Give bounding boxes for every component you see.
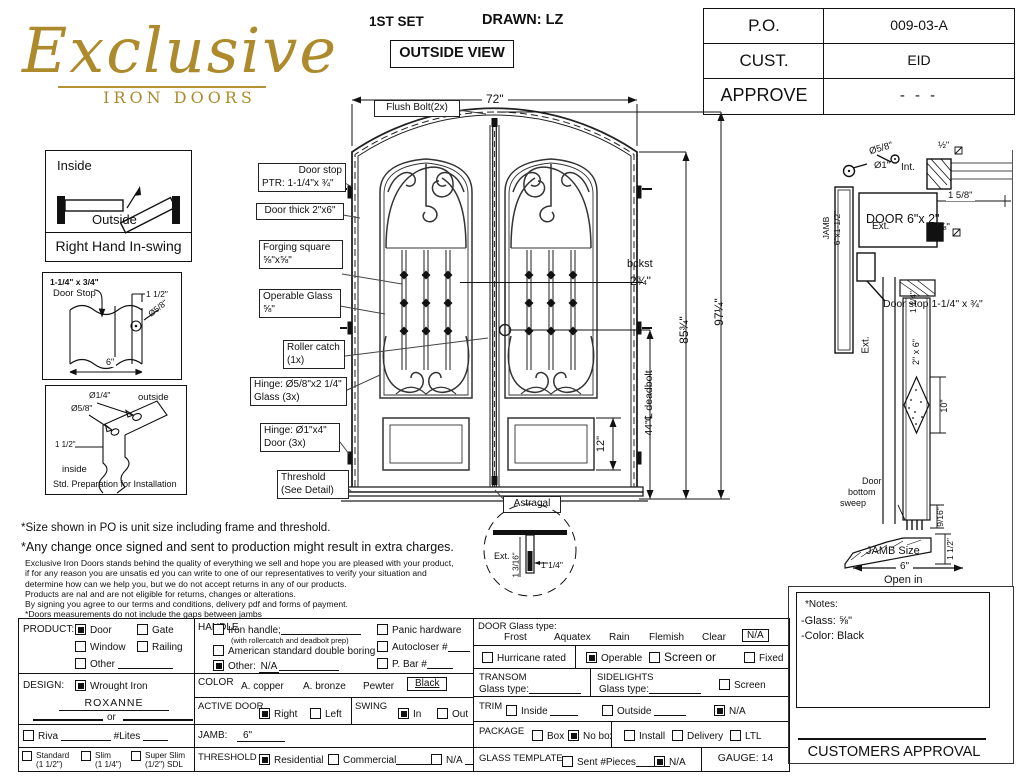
trim-inside-blank[interactable] [550,706,578,716]
design-wrought-label: Wrought Iron [90,681,148,692]
product-door-label: Door [90,625,112,636]
handle-american-label: American standard double boring [228,646,375,657]
panic-label: Panic hardware [392,625,461,636]
doorstop-width-dim: 6" [104,357,116,367]
sidelights-blank[interactable] [649,684,701,694]
checkbox-pbar[interactable] [377,658,388,669]
sidelight-screen-label: Screen [734,680,766,691]
sd-door: 2" x 6" [911,339,921,365]
color-copper[interactable]: A. copper [241,681,284,692]
callout-hinge-glass: Hinge: Ø5/8"x2 1/4" Glass (3x) [250,377,347,406]
drawn-by-label: DRAWN: LZ [482,12,563,28]
slim-label: Slim(1 1/4") [95,751,122,769]
delivery-cell: Install Delivery LTL [611,721,790,749]
trim-outside-blank[interactable] [654,706,686,716]
pbar-blank[interactable] [427,659,453,669]
threshold-res-label: Residential [274,755,323,766]
threshold-na-label: N/A [446,755,462,766]
astragal-dim2: 1 1/4" [541,560,563,570]
checkbox-screen[interactable] [649,652,660,663]
po-label: P.O. [703,8,825,45]
checkbox-product-gate[interactable] [137,624,148,635]
callout-door-thick: Door thick 2"x6" [256,203,344,220]
jamb-cell: JAMB: 6" [194,724,475,749]
notes-box-glass: -Glass: ⅝" [801,615,852,627]
checkbox-tmpl-na[interactable] [654,756,665,767]
checkbox-sidelight-screen[interactable] [719,679,730,690]
handle-iron-note: (with rollercatch and deadbolt prep) [231,636,349,645]
color-black-selected[interactable]: Black [407,677,447,691]
transom-glass-type: Glass type: [479,684,529,695]
dim-panel: 12" [595,436,607,452]
astragal-detail [468,493,598,598]
sd-open-in: Open in [884,574,923,586]
active-left-label: Left [325,709,342,720]
glass-flemish[interactable]: Flemish [649,632,684,643]
callout-door-stop: Door stop PTR: 1-1/4"x ¾" [258,163,346,192]
checkbox-tmpl-sent[interactable] [562,756,573,767]
dim-leaf-height: 85¾" [677,316,691,344]
checkbox-product-other[interactable] [75,658,86,669]
callout-operable-l2: ⅝" [263,304,337,317]
checkbox-panic[interactable] [377,624,388,635]
dim-bckst: bckst [627,258,653,270]
handle-cell: HANDLE Iron handle; (with rollercatch an… [194,618,475,675]
transom-cell: TRANSOM Glass type: [473,668,592,698]
prep-hole-big: Ø5/8" [71,403,92,413]
callout-operable-l1: Operable Glass [263,291,337,304]
tmpl-label: GLASS TEMPLATE [479,753,563,764]
swing-out-label: Out [452,709,468,720]
sidelights-cell: SIDELIGHTS Glass type: Screen [590,668,790,698]
notes-box: *Notes: -Glass: ⅝" -Color: Black [796,592,990,708]
checkbox-trim-outside[interactable] [602,705,613,716]
active-right-label: Right [274,709,297,720]
handle-iron-label: Iron handle; [228,625,281,636]
jd-jamb2: 6"x1-1/2" [832,211,842,245]
pkg-nobox-label: No box [583,731,615,742]
swing-caption: Right Hand In-swing [45,232,192,262]
trim-outside-label: Outside [617,706,651,717]
cust-value: EID [823,43,1015,80]
color-pewter[interactable]: Pewter [363,681,394,692]
checkbox-handle-american[interactable] [213,645,224,656]
autocloser-blank[interactable] [448,642,470,652]
checkbox-standard[interactable] [22,751,32,761]
checkbox-swing-out[interactable] [437,708,448,719]
company-logo: Exclusive [22,6,272,96]
callout-forging: Forging square ⅝"x⅝" [259,240,343,269]
or-line-left [33,719,103,721]
callout-hinge-door-l2: Door (3x) [264,438,336,451]
swing-label: SWING [355,701,387,712]
dim-deadbolt: 44"℄ deadbolt [643,370,655,435]
sd-jamb-size: JAMB Size [866,545,920,557]
glass-rain[interactable]: Rain [609,632,630,643]
threshold-cell: THRESHOLD Residential Commercial N/A [194,747,475,772]
notes-box-color: -Color: Black [801,630,864,642]
gauge-cell: GAUGE: 14 [701,747,790,772]
hurricane-cell: Hurricane rated [473,645,577,670]
callout-roller-l2: (1x) [287,355,341,368]
set-label: 1ST SET [369,14,424,29]
prep-caption: Std. Preparation for Installation [53,479,177,489]
checkbox-trim-inside[interactable] [506,705,517,716]
design-or: or [107,712,116,723]
checkbox-handle-iron[interactable] [213,624,224,635]
prep-hole-small: Ø1/4" [89,390,110,400]
jd-five8: ⅝" [938,222,950,233]
operable-label: Operable [601,653,642,664]
product-window-label: Window [90,642,126,653]
company-logo-subtitle: IRON DOORS [92,88,267,107]
color-cell: COLOR A. copper A. bronze Pewter Black [194,673,475,699]
jd-jamb1: JAMB [821,217,831,240]
signature-line[interactable] [798,738,986,740]
sd-dim-bottom: 1 1/2" [945,538,955,560]
product-other-label: Other [90,659,115,670]
doorstop-size: 1-1/4" x 3/4" [50,277,99,287]
sd-ext: Ext. [861,336,872,353]
checkbox-hurricane[interactable] [482,652,493,663]
color-bronze[interactable]: A. bronze [303,681,346,692]
checkbox-pkg-ltl[interactable] [730,730,741,741]
jd-ext: Ext. [872,221,889,232]
package-label: PACKAGE [479,726,524,737]
checkbox-product-window[interactable] [75,641,86,652]
note-small-5: By signing you agree to our terms and co… [25,599,454,609]
product-gate-label: Gate [152,625,174,636]
sidelights-label: SIDELIGHTS [597,672,654,683]
prep-offset: 1 1/2" [55,440,76,449]
checkbox-swing-in[interactable] [398,708,409,719]
checkbox-fixed[interactable] [744,652,755,663]
callout-hinge-door: Hinge: Ø1"x4" Door (3x) [260,423,340,452]
prep-inside: inside [62,464,87,475]
product-label: PRODUCT: [23,624,74,635]
trim-label: TRIM [479,701,502,712]
checkbox-active-right[interactable] [259,708,270,719]
callout-threshold-l2: (See Detail) [281,485,345,498]
riva-blank[interactable] [61,731,111,741]
dim-bckst-val: 2¾" [630,274,651,288]
sd-dim-top: 1 1/4" [908,291,918,313]
jd-half: ½" [938,140,949,151]
checkbox-handle-other[interactable] [213,660,224,671]
jd-int: Int. [901,162,915,173]
active-door-cell: ACTIVE DOOR Right Left [194,697,353,726]
jamb-value[interactable]: 6" [237,730,285,742]
glass-na-selected[interactable]: N/A [742,629,769,642]
checkbox-threshold-na[interactable] [431,754,442,765]
checkbox-product-door[interactable] [75,624,86,635]
sd-sweep-l1: Door [840,476,900,487]
glass-type-cell: DOOR Glass type: Frost Aquatex Rain Flem… [473,618,790,647]
glass-template-cell: GLASS TEMPLATE Sent #Pieces N/A [473,747,703,772]
handle-iron-blank[interactable] [281,625,361,635]
checkbox-pkg-install[interactable] [624,730,635,741]
door-spec-sheet: Exclusive IRON DOORS 1ST SET DRAWN: LZ O… [0,0,1024,780]
design-cell: DESIGN: Wrought Iron ROXANNE or [18,673,196,726]
checkbox-design-wrought[interactable] [75,680,86,691]
sd-sweep-l3: sweep [840,498,900,509]
sdl-cell: Standard(1 1/2") Slim(1 1/4") Super Slim… [18,747,196,772]
autocloser-label: Autocloser # [392,642,448,653]
checkbox-slim[interactable] [81,751,91,761]
lites-label: #Lites [114,731,141,742]
checkbox-pkg-box[interactable] [532,730,543,741]
product-railing-label: Railing [152,642,183,653]
callout-roller: Roller catch (1x) [283,340,345,369]
active-label: ACTIVE DOOR [198,701,263,712]
callout-door-stop-l2: PTR: 1-1/4"x ¾" [262,178,342,191]
sd-jamb-val: 6" [896,561,913,572]
jd-dim1: 1 5/8" [946,190,975,201]
swing-cell: SWING In Out [351,697,475,726]
screen-label: Screen or [664,650,716,664]
note-smallprint: Exclusive Iron Doors stands behind the q… [25,558,454,620]
checkbox-threshold-com[interactable] [328,754,339,765]
jamb-label: JAMB: [198,730,227,741]
tmpl-na-label: N/A [669,757,686,768]
product-cell: PRODUCT: Door Gate Window Railing Other [18,618,196,675]
callout-roller-l1: Roller catch [287,342,341,355]
riva-label: Riva [38,731,58,742]
cust-label: CUST. [703,43,825,80]
note-small-2: if for any reason you are unsatis ed you… [25,568,454,578]
handle-other-label: Other: [228,661,256,672]
glass-frost[interactable]: Frost [504,632,527,643]
po-value: 009-03-A [823,8,1015,45]
product-other-blank[interactable] [118,659,173,669]
sd-sweep-label: Door bottom sweep [840,476,900,509]
pkg-ltl-label: LTL [745,731,762,742]
jd-hole-big: Ø1" [874,160,890,171]
checkbox-operable[interactable] [586,652,597,663]
checkbox-superslim[interactable] [131,751,141,761]
callout-flush-bolt: Flush Bolt(2x) [374,100,460,117]
checkbox-product-railing[interactable] [137,641,148,652]
pkg-box-label: Box [547,731,564,742]
callout-hinge-door-l1: Hinge: Ø1"x4" [264,425,336,438]
handle-other-blank[interactable] [279,661,339,671]
design-name-value[interactable]: ROXANNE [59,697,169,711]
threshold-label: THRESHOLD [198,752,257,763]
trim-inside-label: Inside [521,706,548,717]
or-line-right [123,719,193,721]
glass-aquatex[interactable]: Aquatex [554,632,591,643]
note-small-4: Products are nal and are not eligible fo… [25,589,454,599]
transom-blank[interactable] [529,684,581,694]
pkg-install-label: Install [639,731,665,742]
checkbox-autocloser[interactable] [377,641,388,652]
callout-forging-l2: ⅝"x⅝" [263,255,339,268]
checkbox-pkg-delivery[interactable] [672,730,683,741]
callout-hinge-glass-l2: Glass (3x) [254,392,343,405]
sd-sweep-dim: 9/16" [935,507,945,527]
outside-view-label: OUTSIDE VIEW [390,40,514,68]
approve-value: - - - [823,78,1015,115]
operable-cell: Operable Screen or Fixed [575,645,790,670]
superslim-label: Super Slim(1/2") SDL [145,751,185,769]
callout-forging-l1: Forging square [263,242,339,255]
standard-label: Standard(1 1/2") [36,751,69,769]
sd-glass-dim: 10" [939,399,949,412]
section-detail-drawing [845,272,1015,582]
customers-approval-label: CUSTOMERS APPROVAL [800,744,988,760]
note-small-3: determine how can we help you, but we do… [25,579,454,589]
tmpl-sent-label: Sent #Pieces [577,757,636,768]
fixed-label: Fixed [759,653,783,664]
glass-clear[interactable]: Clear [702,632,726,643]
swing-in-label: In [413,709,421,720]
callout-hinge-glass-l1: Hinge: Ø5/8"x2 1/4" [254,379,343,392]
checkbox-riva[interactable] [23,730,34,741]
riva-cell: Riva #Lites [18,724,196,749]
checkbox-active-left[interactable] [310,708,321,719]
dim-width: 72" [482,92,508,106]
callout-door-stop-l1: Door stop [262,165,342,178]
color-label: COLOR [198,677,234,688]
note-line1: *Size shown in PO is unit size including… [21,522,330,534]
doorstop-name: Door Stop [53,288,96,299]
astragal-dim1: 1 3/16" [512,552,521,577]
package-cell: PACKAGE Box No box [473,721,613,749]
swing-diagram [45,150,192,234]
astragal-ext: Ext. [494,551,510,561]
pbar-label: P. Bar # [392,659,427,670]
threshold-com-label: Commercial [343,755,396,766]
checkbox-trim-na[interactable] [714,705,725,716]
note-small-1: Exclusive Iron Doors stands behind the q… [25,558,454,568]
notes-box-title: *Notes: [805,599,838,610]
transom-label: TRANSOM [479,672,527,683]
trim-cell: TRIM Inside Outside N/A [473,696,790,723]
handle-other-value[interactable]: N/A [259,661,280,673]
pkg-delivery-label: Delivery [687,731,723,742]
callout-threshold: Threshold (See Detail) [277,470,349,499]
prep-outside: outside [138,392,169,403]
checkbox-threshold-res[interactable] [259,754,270,765]
sidelights-glass-type: Glass type: [599,684,649,695]
glass-label: DOOR Glass type: [478,621,557,632]
note-line2: *Any change once signed and sent to prod… [21,540,454,554]
checkbox-pkg-nobox[interactable] [568,730,579,741]
dim-unit-height: 97¼" [712,298,726,326]
design-label: DESIGN: [23,680,64,691]
hurricane-label: Hurricane rated [497,653,566,664]
threshold-com-blank[interactable] [396,755,434,765]
callout-operable: Operable Glass ⅝" [259,289,341,318]
callout-threshold-l1: Threshold [281,472,345,485]
sd-sweep-l2: bottom [840,487,900,498]
trim-na-label: N/A [729,706,746,717]
lites-blank[interactable] [143,731,168,741]
doorstop-offset-dim: 1 1/2" [146,289,168,299]
